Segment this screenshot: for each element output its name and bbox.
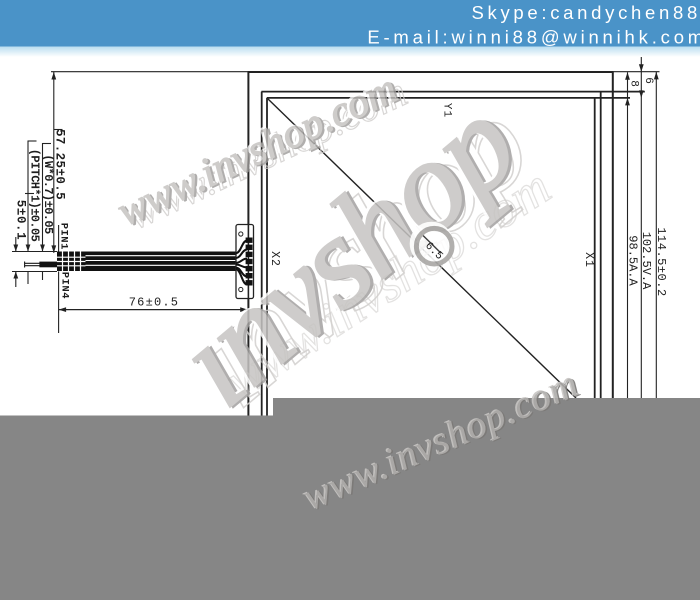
svg-text:E-mail:winni88@winnihk.com: E-mail:winni88@winnihk.com: [367, 27, 700, 48]
svg-text:Skype:candychen88: Skype:candychen88: [471, 2, 700, 23]
svg-text:PIN4: PIN4: [59, 272, 71, 299]
svg-text:102.5V.A: 102.5V.A: [639, 232, 653, 290]
svg-text:(PITCH*1)±0.05: (PITCH*1)±0.05: [28, 149, 42, 242]
svg-text:X1: X1: [582, 252, 595, 268]
svg-text:6: 6: [642, 77, 654, 84]
svg-text:98.5A.A: 98.5A.A: [625, 235, 639, 286]
svg-text:114.5±0.2: 114.5±0.2: [654, 227, 668, 296]
svg-text:5±0.1: 5±0.1: [14, 200, 28, 241]
svg-text:8: 8: [627, 80, 639, 87]
svg-text:PIN1: PIN1: [58, 223, 70, 250]
svg-text:(W*0.7)±0.05: (W*0.7)±0.05: [41, 154, 55, 234]
